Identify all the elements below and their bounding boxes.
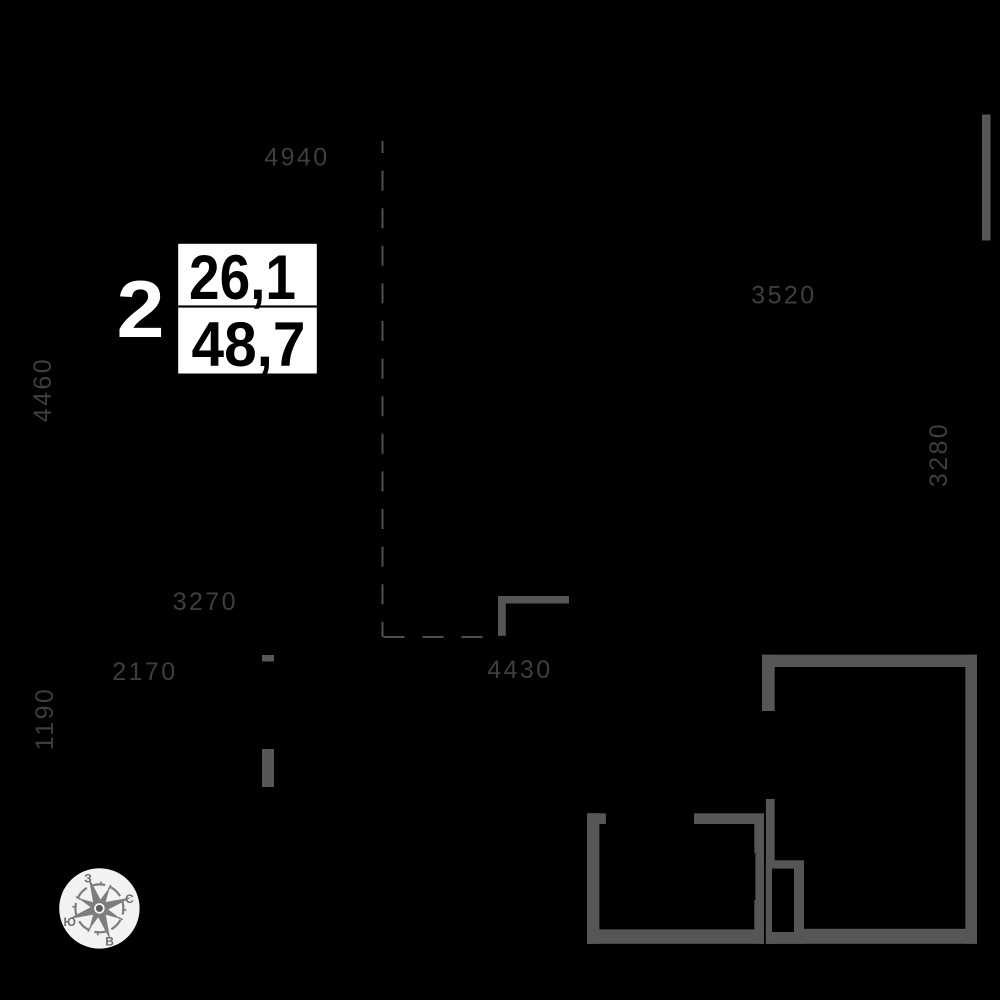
svg-text:2170: 2170	[112, 658, 177, 686]
svg-text:4430: 4430	[487, 656, 552, 684]
svg-text:3280: 3280	[925, 422, 953, 487]
svg-text:2: 2	[117, 265, 165, 355]
svg-text:Ю: Ю	[64, 915, 76, 929]
svg-text:3520: 3520	[751, 282, 816, 310]
svg-text:С: С	[125, 892, 134, 906]
svg-text:48,7: 48,7	[192, 310, 306, 380]
svg-text:1190: 1190	[31, 687, 59, 750]
svg-text:4460: 4460	[29, 357, 57, 422]
svg-text:3270: 3270	[173, 588, 238, 616]
svg-text:В: В	[105, 935, 114, 949]
svg-text:4940: 4940	[264, 144, 329, 172]
svg-text:26,1: 26,1	[189, 243, 296, 313]
svg-text:З: З	[84, 872, 92, 886]
